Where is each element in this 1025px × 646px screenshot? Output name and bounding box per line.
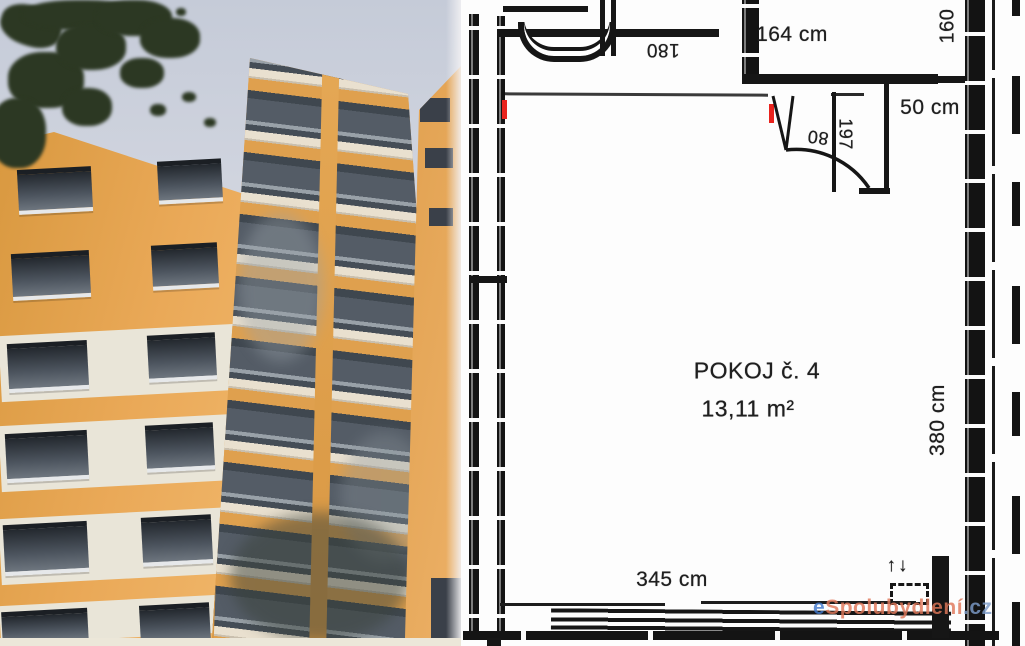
radiator-arrows-icon: ↑↓: [887, 555, 910, 577]
wall-line: [992, 0, 995, 646]
tree-foliage: [0, 98, 46, 168]
facade-window: [3, 521, 90, 576]
tree-leaf: [150, 104, 166, 116]
photo-edge-haze: [446, 0, 461, 638]
tree-leaf: [182, 92, 196, 102]
facade-window: [147, 332, 217, 382]
facade-window: [141, 514, 213, 567]
dimension-label-345cm: 345 cm: [636, 568, 708, 592]
wall-segment: [463, 631, 999, 640]
facade-window: [5, 430, 89, 483]
wall-segment: [742, 74, 938, 84]
tree-reflection: [230, 512, 410, 638]
window-sill-line: [500, 603, 665, 606]
room-area-label: 13,11 m²: [701, 396, 794, 423]
facade-window: [11, 250, 91, 301]
wall-line: [505, 92, 768, 96]
tree-leaf: [176, 8, 186, 16]
facade-window: [1, 608, 89, 638]
wall-segment: [611, 0, 616, 56]
glass-reflection: [238, 212, 324, 362]
tree-foliage: [140, 18, 200, 58]
dimension-label-197: 197: [835, 118, 856, 150]
watermark-name: Spolubydlení: [825, 596, 963, 619]
facade-window: [145, 422, 215, 472]
facade-window: [157, 158, 223, 204]
wall-segment: [600, 0, 605, 56]
facade-window: [17, 166, 93, 215]
dimension-label-380cm: 380 cm: [926, 384, 950, 456]
floor-plan: 180 164 cm 80 197 50 cm 160 380 cm POKOJ…: [461, 0, 1025, 646]
watermark-prefix: e: [813, 596, 825, 619]
wall-segment: [884, 80, 889, 194]
tree-foliage: [62, 88, 112, 126]
wall-segment: [503, 6, 588, 12]
watermark: eSpolubydlení.cz: [813, 596, 993, 620]
red-marker: [502, 100, 507, 119]
building-photo: [0, 0, 461, 638]
wall-segment: [859, 188, 890, 194]
tree-foliage: [120, 58, 164, 88]
facade-window: [139, 602, 211, 638]
listing-image: 180 164 cm 80 197 50 cm 160 380 cm POKOJ…: [0, 0, 1025, 646]
dimension-label-180: 180: [646, 38, 679, 60]
dimension-label-80: 80: [806, 125, 829, 148]
wall-segment: [965, 0, 985, 646]
watermark-tld: .cz: [963, 596, 993, 619]
wall-edge-noise: [1012, 0, 1020, 646]
facade-window: [151, 242, 219, 290]
door-swing: [761, 88, 901, 200]
room-name-label: POKOJ č. 4: [694, 358, 820, 385]
wall-segment: [487, 638, 501, 646]
facade-window: [7, 340, 89, 393]
wall-segment: [469, 14, 479, 640]
wall-segment: [921, 76, 967, 83]
wall-segment: [470, 276, 507, 283]
photo-bottom-strip: [0, 638, 461, 646]
dimension-label-50cm: 50 cm: [900, 96, 960, 120]
dimension-label-164cm: 164 cm: [756, 23, 828, 47]
tree-leaf: [204, 118, 216, 127]
dimension-label-160: 160: [937, 9, 960, 44]
